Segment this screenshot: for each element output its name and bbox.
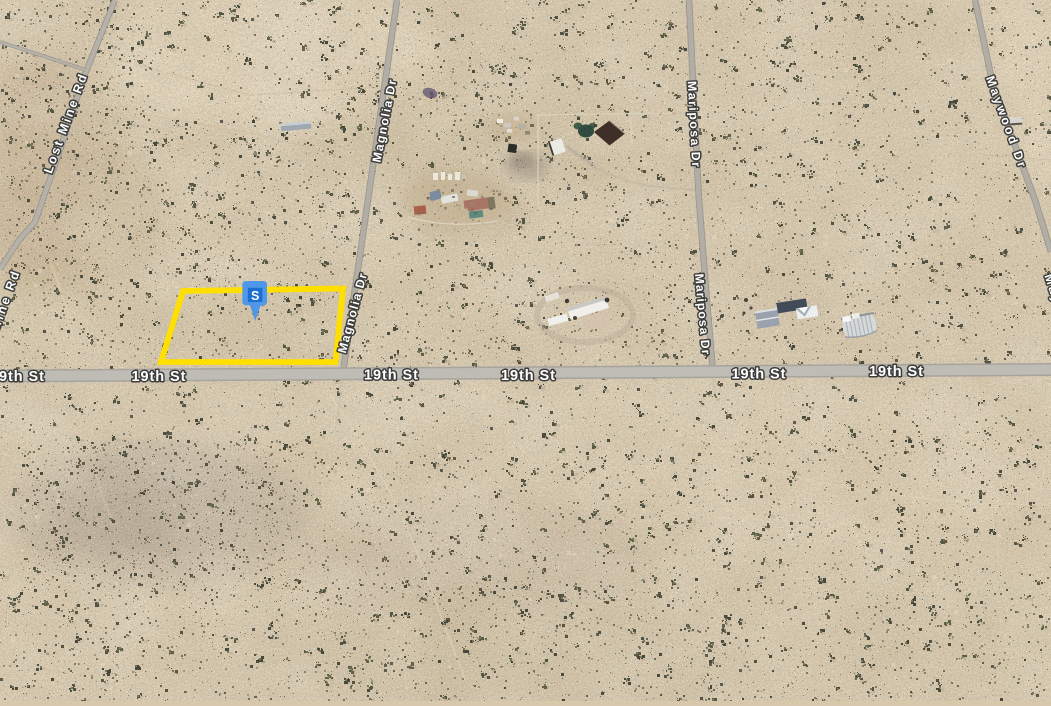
svg-text:19th St: 19th St [869, 364, 923, 380]
svg-text:19th St: 19th St [732, 366, 786, 382]
svg-text:19th St: 19th St [132, 369, 186, 385]
svg-text:19th St: 19th St [0, 369, 44, 385]
svg-text:19th St: 19th St [364, 367, 418, 383]
svg-text:S: S [251, 289, 259, 303]
svg-text:19th St: 19th St [501, 368, 555, 384]
